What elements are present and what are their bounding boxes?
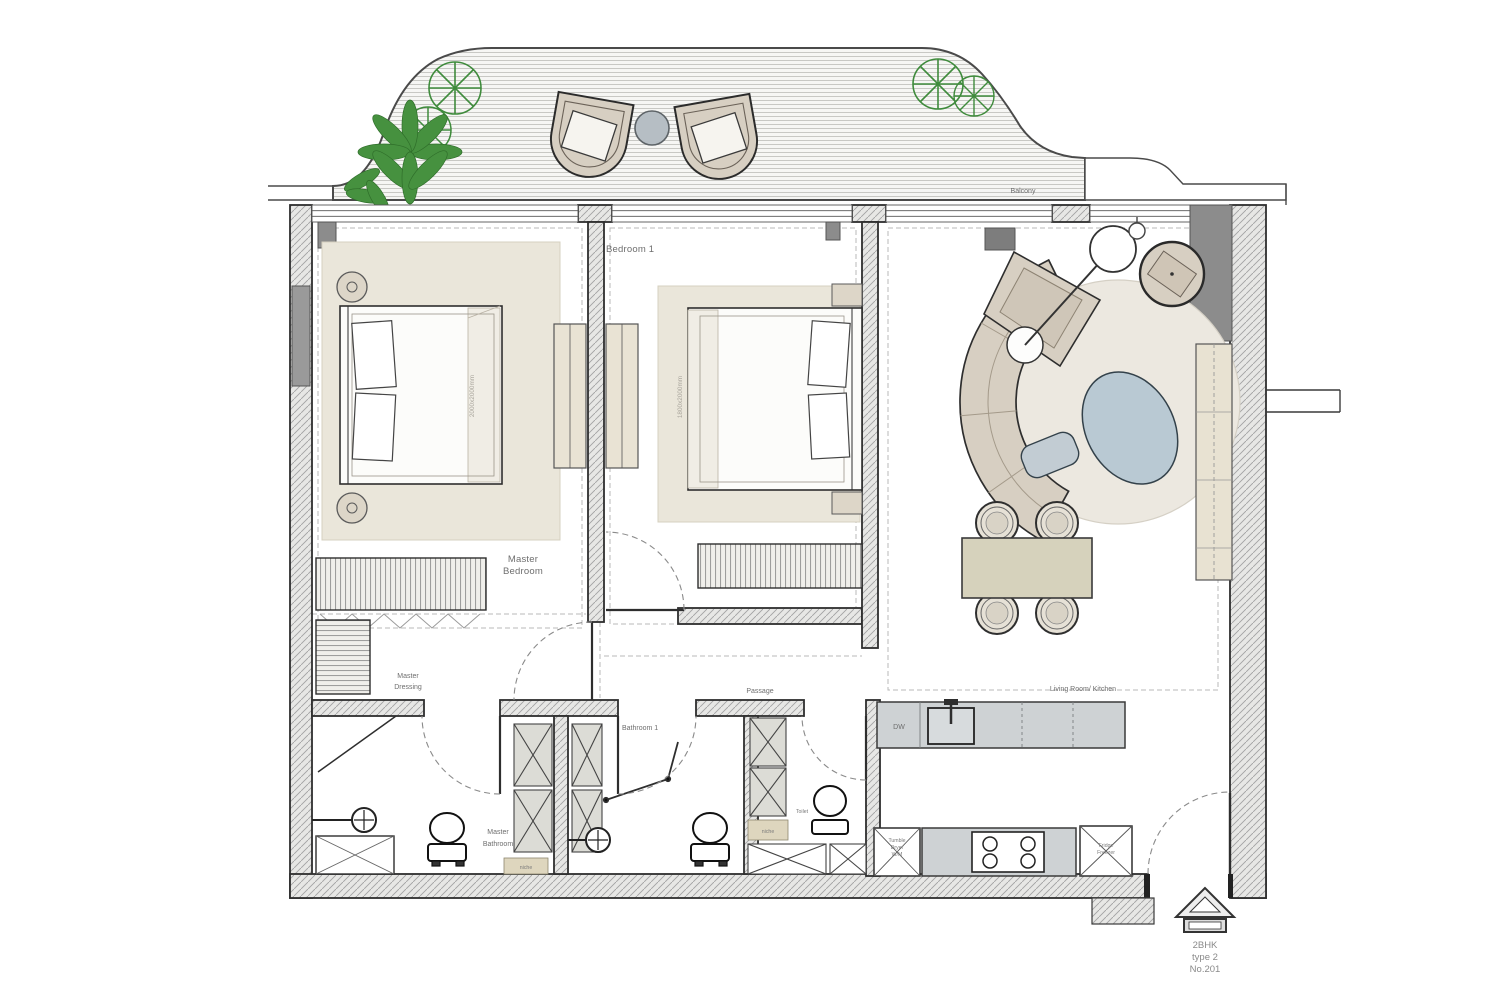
fridge-label: Fridge: [1099, 843, 1114, 849]
bedside-shelf: [832, 284, 862, 306]
master-bedroom-label: Master: [508, 554, 538, 565]
pillow: [808, 393, 849, 459]
toilet-icon: [812, 786, 848, 834]
bathroom1-label: Bathroom 1: [622, 725, 658, 732]
faucet-icon: [944, 699, 958, 705]
toilet-label: Toilet: [796, 809, 809, 815]
bench: [698, 544, 862, 588]
master-bedroom-label: Bedroom: [503, 566, 543, 577]
pillow: [808, 321, 850, 387]
balcony: Balcony: [268, 48, 1286, 219]
exterior-extension: [1266, 390, 1340, 412]
master-dressing-label: Dressing: [394, 684, 422, 691]
entry-marker-icon: [1176, 888, 1234, 932]
unit-stamp: No.201: [1190, 964, 1221, 975]
dining-table: [962, 538, 1092, 598]
tv-cabinet: [1196, 344, 1232, 580]
kitchen-island: DW: [877, 699, 1125, 748]
unit-stamp: 2BHK: [1193, 940, 1218, 951]
tree-icon: [954, 76, 994, 116]
bedside-shelf: [832, 492, 862, 514]
floor-plan-page: Balcony: [0, 0, 1500, 1000]
floor-plan-drawing: Balcony: [0, 0, 1500, 1000]
master-bathroom-label: Bathroom: [483, 841, 514, 848]
living-kitchen-label: Living Room/ Kitchen: [1050, 686, 1116, 693]
bed-throw: [688, 310, 718, 488]
armchair: [1140, 242, 1204, 306]
passage-label: Passage: [746, 688, 773, 695]
hob: [972, 832, 1044, 872]
fridge-label: Freezer: [1097, 850, 1115, 856]
dressing-shelves: [316, 620, 370, 694]
washer-label: W/M: [892, 852, 903, 858]
balcony-side-table: [635, 111, 669, 145]
pillow: [352, 393, 395, 461]
washer-label: Dryer: [891, 845, 904, 851]
shower-tray: [316, 836, 394, 874]
balcony-label: Balcony: [1011, 188, 1036, 195]
dishwasher-label: DW: [893, 724, 905, 731]
bedroom1-label: Bedroom 1: [606, 244, 654, 255]
bed-dimension: 1800x2000mm: [677, 376, 684, 418]
fridge-box: Fridge Freezer: [1080, 826, 1132, 876]
bed-dimension: 2000x2000mm: [469, 375, 476, 417]
storage-boxes: [748, 844, 866, 874]
nightstand: [337, 493, 367, 523]
pillow: [352, 321, 397, 390]
nightstand: [337, 272, 367, 302]
master-dressing-label: Master: [397, 673, 419, 680]
balcony-walkway-right: [1085, 158, 1286, 200]
unit-stamp: type 2: [1192, 952, 1218, 963]
entrance-area: 2BHK type 2 No.201: [1092, 888, 1234, 975]
tree-icon: [429, 62, 481, 114]
washer-dryer-box: Tumble Dryer W/M: [874, 828, 920, 876]
niche-label: niche: [762, 829, 775, 835]
entry-landing: [1092, 898, 1154, 924]
master-bed: 2000x2000mm: [340, 306, 502, 484]
tv-unit: [985, 228, 1015, 250]
bed-1: 1800x2000mm: [677, 308, 862, 490]
appliance-row: Tumble Dryer W/M Fridge Freezer: [874, 826, 1132, 876]
washer-label: Tumble: [888, 838, 905, 844]
master-bathroom-label: Master: [487, 829, 509, 836]
niche-label: niche: [520, 865, 533, 871]
